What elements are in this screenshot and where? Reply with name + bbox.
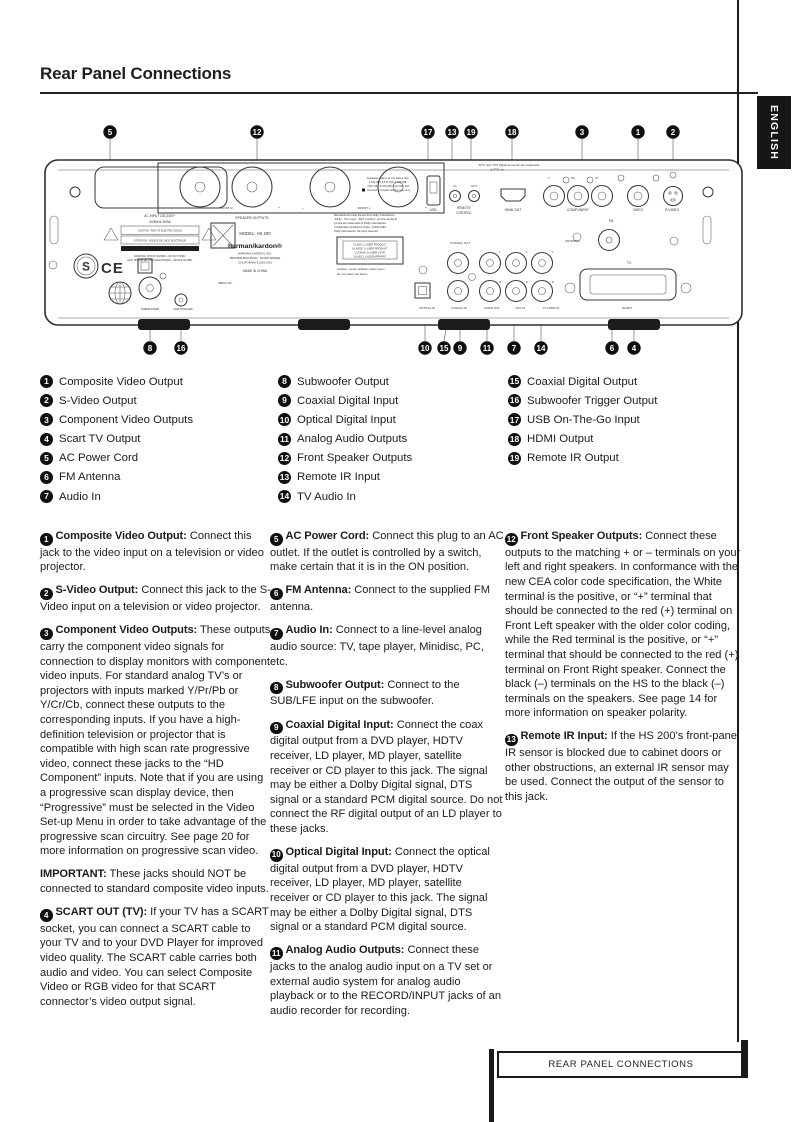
svg-text:CAUTION : RISK OF ELECTRIC SHO: CAUTION : RISK OF ELECTRIC SHOCK [138,230,182,233]
legend-item-15: 15Coaxial Digital Output [508,375,657,388]
model-label: MODEL: HS 200 [239,231,271,236]
svg-text:CLASS 1 LASER PRODUCT: CLASS 1 LASER PRODUCT [353,243,387,247]
callout-14: 14 [534,341,547,354]
legend-item-16: 16Subwoofer Trigger Output [508,394,657,407]
svg-text:IN: IN [454,184,457,188]
svg-text:7: 7 [512,344,517,353]
svg-text:Do not stare into beam.: Do not stare into beam. [337,272,368,276]
svg-text:Y: Y [548,176,550,180]
callout-17: 17 [421,125,434,138]
legend-column-2: 8Subwoofer Output 9Coaxial Digital Input… [278,375,412,503]
front-r-label: FRONT R [219,206,233,210]
legend-label: Front Speaker Outputs [297,452,412,464]
legend-num-14: 14 [278,490,291,503]
legend-item-2: 2S-Video Output [40,394,193,407]
legend-num-4: 4 [40,433,53,446]
para-coaxial-digital-input: 9Coaxial Digital Input: Connect the coax… [270,718,504,837]
legend-item-11: 11Analog Audio Outputs [278,433,412,446]
body-column-3: 12Front Speaker Outputs: Connect these o… [505,529,743,813]
svg-text:licensed for limited viewing u: licensed for limited viewing uses only. [367,188,410,192]
front-l-label: FRONT L [358,206,371,210]
legend-item-10: 10Optical Digital Input [278,413,412,426]
svg-text:R: R [552,280,554,284]
svg-text:Manufactured under license fro: Manufactured under license from Dolby La… [334,213,395,217]
svg-text:4: 4 [632,344,637,353]
svg-text:S-VIDEO: S-VIDEO [665,208,679,212]
callout-13: 13 [445,125,458,138]
legend-num-18: 18 [508,433,521,446]
svg-text:AUDIO OUT: AUDIO OUT [484,306,500,310]
svg-text:ATTENTION : RISQUE DE CHOC ELE: ATTENTION : RISQUE DE CHOC ELECTRIQUE [134,239,187,242]
legend-label: USB On-The-Go Input [527,414,640,426]
body-column-1: 1Composite Video Output: Connect this ja… [40,529,272,1018]
legend-num-9: 9 [278,394,291,407]
svg-text:4,631,603; 4,577,216; 4,819,09: 4,631,603; 4,577,216; 4,819,098; [369,180,407,184]
legend-label: Component Video Outputs [59,414,193,426]
para-svideo-output: 2S-Video Output: Connect this jack to th… [40,583,272,614]
legend-label: FM Antenna [59,471,120,483]
callout-9: 9 [453,341,466,354]
svg-text:3: 3 [580,128,585,137]
legend-label: Analog Audio Outputs [297,433,407,445]
speaker-outputs-label: SPEAKER OUTPUTS [235,216,269,220]
legend-item-14: 14TV Audio In [278,490,412,503]
svg-text:ANTENNA: ANTENNA [565,239,579,243]
legend-item-13: 13Remote IR Input [278,471,412,484]
legend-num-6: 6 [40,471,53,484]
legend-num-10: 10 [278,413,291,426]
legend-item-7: 7Audio In [40,490,193,503]
callout-3: 3 [575,125,588,138]
svg-text:Caution: Laser radiation when: Caution: Laser radiation when open. [337,267,385,271]
legend-item-4: 4Scart TV Output [40,433,193,446]
svg-text:SUB TRIGGER: SUB TRIGGER [173,307,192,311]
svg-text:“DTS” and “DTS Digital Surroun: “DTS” and “DTS Digital Surround” are tra… [478,163,540,167]
callout-4: 4 [627,341,640,354]
svg-text:15: 15 [440,344,449,353]
para-optical-digital-input: 10Optical Digital Input: Connect the opt… [270,845,504,935]
svg-text:Confidential unpublished works: Confidential unpublished works, ©1992-19… [334,225,386,229]
svg-text:symbol are trademarks of Dolby: symbol are trademarks of Dolby Laborator… [334,221,387,225]
para-important-note: IMPORTANT: These jacks should NOT be con… [40,867,272,896]
svg-text:“Dolby”, “Pro Logic”, “MLP Los: “Dolby”, “Pro Logic”, “MLP Lossless”, an… [334,217,397,221]
ce-mark: CE [101,260,124,277]
svg-text:COAXIAL OUT: COAXIAL OUT [450,241,470,245]
svg-text:18: 18 [508,128,517,137]
svg-text:6: 6 [610,344,615,353]
legend-num-12: 12 [278,452,291,465]
svg-text:19: 19 [467,128,476,137]
legend-num-17: 17 [508,413,521,426]
callout-16: 16 [174,341,187,354]
callout-8: 8 [143,341,156,354]
legend-label: Coaxial Digital Input [297,395,398,407]
callout-15: 15 [437,341,450,354]
legend-label: HDMI Output [527,433,593,445]
callout-2: 2 [666,125,679,138]
legend-label: TV Audio In [297,491,356,503]
para-audio-in: 7Audio In: Connect to a line-level analo… [270,623,504,669]
svg-text:HARMAN KARDON, INC.: HARMAN KARDON, INC. [238,252,273,256]
svg-text:COAXIAL IN: COAXIAL IN [451,306,467,310]
legend-item-19: 19Remote IR Output [508,452,657,465]
footer-left-rule [489,1049,494,1122]
svg-text:50/60Hz 300W: 50/60Hz 300W [149,220,170,224]
footer-section-box: REAR PANEL CONNECTIONS [497,1051,745,1078]
callout-18: 18 [505,125,518,138]
svg-text:+: + [278,206,280,210]
svg-text:KLASSE 1 LASER PRODUKT: KLASSE 1 LASER PRODUKT [353,247,388,251]
legend-label: Coaxial Digital Output [527,376,637,388]
legend-label: S-Video Output [59,395,137,407]
legend-num-16: 16 [508,394,521,407]
legend-item-18: 18HDMI Output [508,433,657,446]
callout-5: 5 [103,125,116,138]
callout-7: 7 [507,341,520,354]
manual-page: Rear Panel Connections ENGLISH [0,0,793,1122]
legend-item-1: 1Composite Video Output [40,375,193,388]
svg-text:8: 8 [148,344,153,353]
svg-text:17: 17 [424,128,433,137]
svg-text:COMPONENT: COMPONENT [567,208,589,212]
legend-item-9: 9Coaxial Digital Input [278,394,412,407]
rear-panel-diagram: AC INPUT 100-240V~ 50/60Hz 300W CAUTION … [0,0,793,370]
svg-text:10: 10 [421,344,430,353]
legend-column-1: 1Composite Video Output 2S-Video Output … [40,375,193,503]
para-scart-out: 4SCART OUT (TV): If your TV has a SCART … [40,905,272,1009]
para-analog-audio-outputs: 11Analog Audio Outputs: Connect these ja… [270,943,504,1018]
svg-text:Pb: Pb [571,176,575,180]
svg-text:16: 16 [177,344,186,353]
svg-text:R: R [499,280,501,284]
svg-text:Pr: Pr [596,176,599,180]
legend-num-19: 19 [508,452,521,465]
legend-label: Audio In [59,491,101,503]
svg-text:AC INPUT 100-240V~: AC INPUT 100-240V~ [144,214,176,218]
callout-6: 6 [605,341,618,354]
svg-text:5: 5 [108,128,113,137]
svg-text:12: 12 [253,128,262,137]
legend-item-17: 17USB On-The-Go Input [508,413,657,426]
svg-text:AUX IN: AUX IN [515,306,524,310]
svg-text:14: 14 [537,344,546,353]
para-composite-video-output: 1Composite Video Output: Connect this ja… [40,529,272,575]
svg-text:OPTICAL IN: OPTICAL IN [419,306,434,310]
footer-right-bar [741,1040,748,1078]
svg-text:R: R [526,280,528,284]
legend-item-5: 5AC Power Cord [40,452,193,465]
legend-label: Composite Video Output [59,376,183,388]
legend-num-11: 11 [278,433,291,446]
para-subwoofer-output: 8Subwoofer Output: Connect to the SUB/LF… [270,678,504,709]
s-mark: S [82,260,90,274]
svg-text:AVIS: RISQUE DE CHOC ELECTRIQU: AVIS: RISQUE DE CHOC ELECTRIQUE – NE PAS… [127,259,193,262]
legend-item-8: 8Subwoofer Output [278,375,412,388]
svg-text:CALIFORNIA 91329,USA: CALIFORNIA 91329,USA [238,261,272,265]
svg-text:HDMI OUT: HDMI OUT [505,208,522,212]
legend-label: Remote IR Output [527,452,619,464]
callout-1: 1 [631,125,644,138]
legend-label: Optical Digital Input [297,414,396,426]
legend-label: Remote IR Input [297,471,380,483]
legend-item-12: 12Front Speaker Outputs [278,452,412,465]
callout-19: 19 [464,125,477,138]
legend-item-6: 6FM Antenna [40,471,193,484]
legend-label: Subwoofer Trigger Output [527,395,657,407]
svg-text:LUOKAN 1 LASER LAITE: LUOKAN 1 LASER LAITE [355,251,385,255]
svg-text:USB: USB [430,208,438,212]
svg-text:8500 BALBOA BLVD., NORTHRIDGE: 8500 BALBOA BLVD., NORTHRIDGE [230,256,280,260]
callout-10: 10 [418,341,431,354]
svg-text:SERIAL NO.: SERIAL NO. [218,281,233,285]
svg-text:SUBWOOFER: SUBWOOFER [141,307,159,311]
legend-label: AC Power Cord [59,452,138,464]
para-remote-ir-input: 13Remote IR Input: If the HS 200’s front… [505,729,743,804]
legend-label: Scart TV Output [59,433,140,445]
svg-text:KLASS 1 LASER APPARAT: KLASS 1 LASER APPARAT [354,255,386,259]
para-ac-power-cord: 5AC Power Cord: Connect this plug to an … [270,529,504,575]
svg-text:CONTROL: CONTROL [456,211,472,215]
svg-text:VIDEO: VIDEO [633,208,644,212]
legend-num-7: 7 [40,490,53,503]
legend-num-15: 15 [508,375,521,388]
legend-num-5: 5 [40,452,53,465]
brand-logo: harman/kardon® [228,242,282,250]
footer-section-label: REAR PANEL CONNECTIONS [548,1059,693,1070]
svg-text:MADE IN CHINA: MADE IN CHINA [243,269,268,273]
svg-text:1: 1 [636,128,641,137]
svg-text:13: 13 [448,128,457,137]
legend-item-3: 3Component Video Outputs [40,413,193,426]
svg-text:11: 11 [483,344,492,353]
svg-text:REMOTE: REMOTE [457,206,471,210]
legend-num-13: 13 [278,471,291,484]
para-component-video-outputs: 3Component Video Outputs: These outputs … [40,623,272,859]
legend-label: Subwoofer Output [297,376,389,388]
svg-text:TV AUDIO IN: TV AUDIO IN [543,306,560,310]
legend-num-2: 2 [40,394,53,407]
para-front-speaker-outputs: 12Front Speaker Outputs: Connect these o… [505,529,743,721]
svg-text:2: 2 [671,128,676,137]
callout-11: 11 [480,341,493,354]
svg-text:WARNING: SHOCK HAZARD – DO NOT: WARNING: SHOCK HAZARD – DO NOT OPEN. [134,255,186,258]
svg-text:Apparatus Claims of U.S.Patent: Apparatus Claims of U.S.Patent Nos. [367,176,410,180]
para-fm-antenna: 6FM Antenna: Connect to the supplied FM … [270,583,504,614]
legend-column-3: 15Coaxial Digital Output 16Subwoofer Tri… [508,375,657,465]
svg-text:of DTS, Inc.: of DTS, Inc. [490,168,505,172]
svg-text:OUT: OUT [471,184,477,188]
legend-num-1: 1 [40,375,53,388]
body-column-2: 5AC Power Cord: Connect this plug to an … [270,529,504,1027]
svg-text:FM: FM [609,219,614,223]
svg-text:9: 9 [458,344,463,353]
callout-12: 12 [250,125,263,138]
svg-text:–: – [302,206,304,210]
svg-text:SCART: SCART [622,306,632,310]
svg-text:Dolby Laboratories. All rights: Dolby Laboratories. All rights reserved. [334,229,379,233]
legend-num-8: 8 [278,375,291,388]
svg-text:+: + [425,206,427,210]
svg-text:4,907,093; 5,315,448 and 6,516: 4,907,093; 5,315,448 and 6,516,132 [367,184,409,188]
globe-icon [109,282,131,304]
svg-text:–: – [171,206,173,210]
legend-num-3: 3 [40,413,53,426]
